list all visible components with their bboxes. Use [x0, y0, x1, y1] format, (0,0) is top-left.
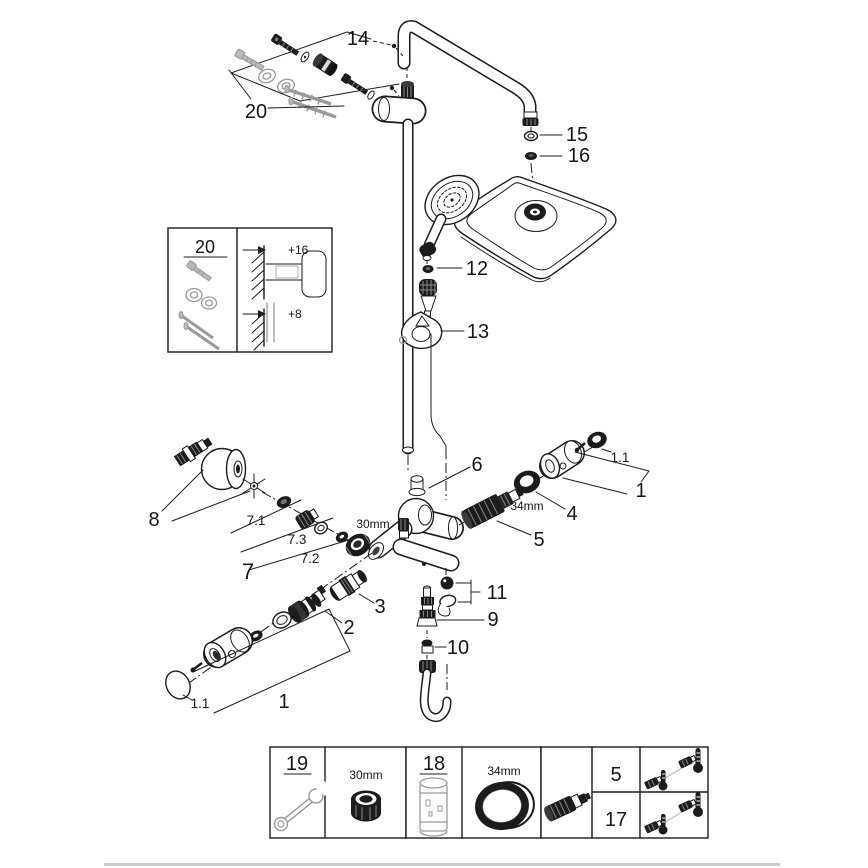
footer-divider — [104, 863, 780, 866]
tool-table — [270, 747, 708, 838]
label-offset-bottom: +8 — [288, 307, 302, 321]
label-part-8: 8 — [148, 509, 159, 531]
label-table-19: 19 — [286, 753, 308, 775]
label-part-1-left: 1 — [278, 691, 289, 713]
part-1-1-screw-left — [191, 663, 203, 673]
label-part-7-1: 7.1 — [247, 513, 266, 528]
label-part-10: 10 — [447, 637, 469, 659]
right-chain — [459, 429, 649, 535]
label-offset-top: +16 — [288, 243, 309, 257]
part-1-1-ring-right — [585, 429, 610, 451]
label-part-5: 5 — [533, 529, 544, 551]
parts-diagram-page: 15 16 — [0, 0, 868, 868]
label-table-34mm: 34mm — [487, 764, 520, 778]
nut-30mm-icon — [351, 791, 381, 822]
label-part-14: 14 — [347, 28, 369, 50]
label-table-30mm: 30mm — [349, 768, 382, 782]
label-part-1-1-right: 1.1 — [611, 450, 630, 465]
label-part-7: 7 — [242, 559, 254, 584]
label-part-4: 4 — [566, 503, 577, 525]
left-chain — [161, 553, 374, 713]
label-table-18: 18 — [423, 753, 445, 775]
shower-hose — [419, 660, 447, 718]
label-part-20-top: 20 — [245, 101, 267, 123]
label-part-16: 16 — [568, 145, 590, 167]
label-part-13: 13 — [467, 321, 489, 343]
label-table-17: 17 — [605, 809, 627, 831]
label-part-11: 11 — [487, 582, 508, 604]
label-part-6: 6 — [471, 454, 482, 476]
label-inset-title: 20 — [195, 237, 215, 257]
label-part-12: 12 — [466, 258, 488, 280]
part-11-group — [438, 577, 480, 617]
ghost-outline — [408, 334, 446, 500]
service-tube-icon — [420, 778, 447, 836]
label-part-15: 15 — [566, 124, 588, 146]
label-part-7-3: 7.3 — [288, 532, 307, 547]
part-10-oring — [422, 640, 447, 660]
star-symbol — [243, 474, 265, 498]
label-part-7-2: 7.2 — [301, 551, 320, 566]
slide-rail — [403, 124, 414, 453]
part-15-washer — [525, 132, 563, 141]
part-3-stop — [327, 566, 370, 603]
label-table-5: 5 — [610, 764, 621, 786]
label-nut-size: 30mm — [356, 517, 389, 531]
label-part-1-1-left: 1.1 — [191, 696, 210, 711]
label-part-2: 2 — [343, 617, 354, 639]
label-ring-size: 34mm — [510, 499, 543, 513]
label-part-9: 9 — [487, 609, 498, 631]
label-part-1-right: 1 — [635, 480, 646, 502]
part-16-oring — [525, 152, 562, 160]
exploded-parts-diagram: 15 16 — [0, 0, 868, 868]
label-part-3: 3 — [374, 596, 385, 618]
part-1-escutcheon-right — [537, 438, 584, 480]
